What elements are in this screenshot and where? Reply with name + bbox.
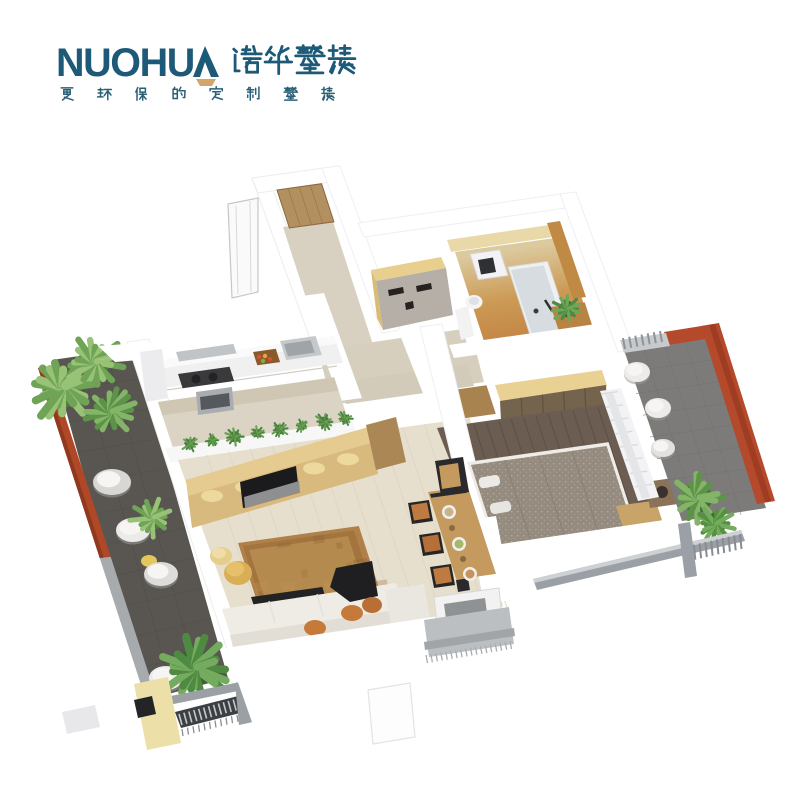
svg-text:NUOHU: NUOHU: [56, 41, 194, 85]
